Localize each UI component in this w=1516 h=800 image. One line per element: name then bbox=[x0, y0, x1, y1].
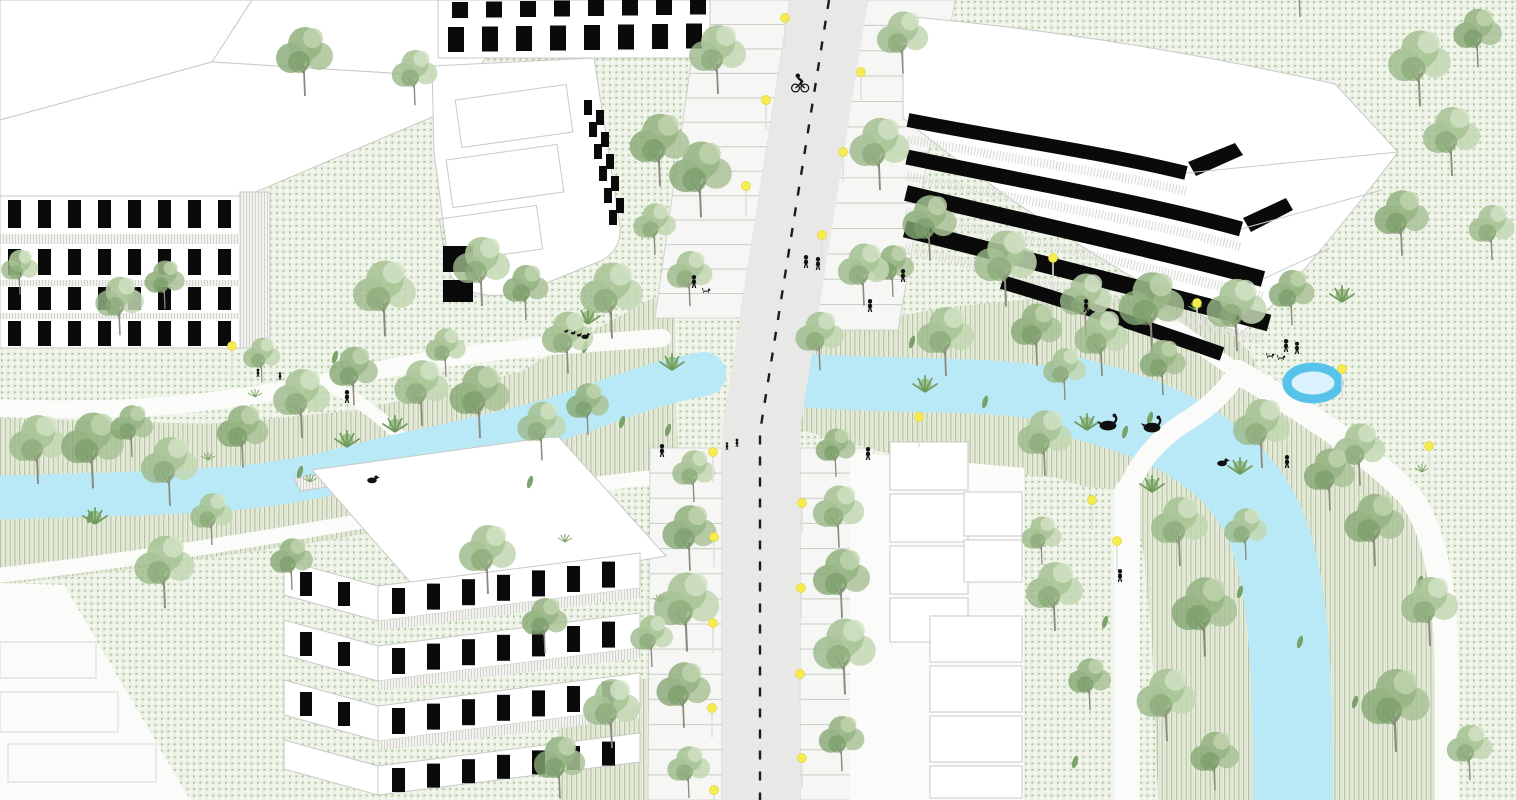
window-bar bbox=[462, 699, 475, 725]
window-bar bbox=[98, 249, 111, 275]
window-bar bbox=[98, 321, 111, 346]
rowhouse-block bbox=[964, 540, 1022, 582]
window-bar bbox=[584, 25, 600, 50]
window-bar bbox=[567, 686, 580, 712]
window-bar bbox=[128, 249, 141, 275]
window-bar bbox=[38, 321, 51, 346]
window-bar bbox=[8, 200, 21, 228]
window-bar bbox=[622, 0, 638, 16]
window-bar bbox=[448, 27, 464, 52]
window-bar bbox=[497, 695, 510, 721]
window-bar bbox=[392, 588, 405, 614]
window-bar bbox=[8, 287, 21, 310]
window-bar bbox=[497, 575, 510, 601]
window-bar bbox=[38, 249, 51, 275]
window-bar bbox=[567, 566, 580, 592]
window-bar bbox=[128, 321, 141, 346]
lamp-light bbox=[796, 670, 805, 679]
window-bar bbox=[497, 635, 510, 661]
window-bar bbox=[188, 321, 201, 346]
rowhouse-block bbox=[930, 666, 1022, 712]
lamp-light bbox=[1425, 442, 1434, 451]
lamp-light bbox=[708, 704, 717, 713]
window-bar bbox=[550, 26, 566, 51]
lamp-light bbox=[915, 413, 924, 422]
window-bar bbox=[38, 287, 51, 310]
window-bar bbox=[588, 0, 604, 16]
curved-corner-building-part bbox=[443, 280, 473, 302]
window-bar bbox=[68, 200, 81, 228]
window-bar bbox=[602, 562, 615, 588]
window-bar bbox=[8, 321, 21, 346]
window-bar bbox=[338, 702, 350, 726]
rowhouse-block bbox=[890, 494, 968, 542]
window-bar bbox=[486, 2, 502, 18]
window-bar bbox=[554, 1, 570, 17]
lamp-light bbox=[781, 14, 790, 23]
feature-layer bbox=[1287, 367, 1339, 399]
window-bar bbox=[98, 200, 111, 228]
rowhouse-block bbox=[890, 546, 968, 594]
window-bar bbox=[68, 249, 81, 275]
window-bar bbox=[604, 188, 612, 203]
lamp-light bbox=[762, 96, 771, 105]
ring-pool bbox=[1287, 367, 1339, 399]
window-bar bbox=[300, 572, 312, 596]
lamp-light bbox=[710, 786, 719, 795]
lamp-light bbox=[818, 231, 827, 240]
lamp-light bbox=[1113, 537, 1122, 546]
window-bar bbox=[497, 755, 510, 779]
window-bar bbox=[392, 648, 405, 674]
apartment-block-northwest-part bbox=[240, 192, 270, 348]
window-bar bbox=[128, 200, 141, 228]
apartment-block-northwest-part bbox=[0, 234, 240, 244]
window-bar bbox=[609, 210, 617, 225]
window-bar bbox=[38, 200, 51, 228]
lamp-light bbox=[1193, 299, 1202, 308]
rowhouse-block bbox=[964, 492, 1022, 536]
window-bar bbox=[68, 321, 81, 346]
window-bar bbox=[616, 198, 624, 213]
window-bar bbox=[656, 0, 672, 15]
window-bar bbox=[300, 632, 312, 656]
window-bar bbox=[452, 2, 468, 18]
lamp-light bbox=[797, 584, 806, 593]
window-bar bbox=[188, 249, 201, 275]
lamp-light bbox=[798, 754, 807, 763]
window-bar bbox=[599, 166, 607, 181]
window-bar bbox=[462, 579, 475, 605]
window-bar bbox=[427, 644, 440, 670]
window-bar bbox=[392, 708, 405, 734]
window-bar bbox=[338, 642, 350, 666]
window-bar bbox=[606, 154, 614, 169]
window-bar bbox=[427, 764, 440, 788]
lamp-light bbox=[798, 499, 807, 508]
lamp-light bbox=[1049, 254, 1058, 263]
window-bar bbox=[516, 26, 532, 51]
lamp-light bbox=[1338, 365, 1347, 374]
site-plan-stage bbox=[0, 0, 1516, 800]
window-bar bbox=[602, 622, 615, 648]
window-bar bbox=[392, 768, 405, 792]
window-bar bbox=[338, 582, 350, 606]
window-bar bbox=[188, 287, 201, 310]
window-bar bbox=[602, 742, 615, 766]
window-bar bbox=[218, 249, 231, 275]
lamp-light bbox=[228, 342, 237, 351]
rowhouse-block bbox=[930, 766, 1022, 798]
window-bar bbox=[584, 100, 592, 115]
lamp-light bbox=[709, 619, 718, 628]
window-bar bbox=[300, 692, 312, 716]
window-bar bbox=[482, 27, 498, 52]
window-bar bbox=[589, 122, 597, 137]
window-bar bbox=[188, 200, 201, 228]
window-bar bbox=[652, 24, 668, 49]
window-bar bbox=[618, 25, 634, 50]
window-bar bbox=[218, 200, 231, 228]
window-bar bbox=[158, 200, 171, 228]
lamp-light bbox=[709, 448, 718, 457]
window-bar bbox=[690, 0, 706, 15]
lamp-light bbox=[710, 533, 719, 542]
rowhouse-block bbox=[930, 716, 1022, 762]
rowhouse-block bbox=[930, 616, 1022, 662]
window-bar bbox=[596, 110, 604, 125]
window-bar bbox=[158, 321, 171, 346]
lamp-light bbox=[1088, 496, 1097, 505]
window-bar bbox=[462, 639, 475, 665]
lamp-light bbox=[839, 148, 848, 157]
window-bar bbox=[594, 144, 602, 159]
window-bar bbox=[68, 287, 81, 310]
window-bar bbox=[462, 759, 475, 783]
rowhouse-block bbox=[890, 442, 968, 490]
rowhouse-layer bbox=[850, 442, 1024, 800]
window-bar bbox=[427, 704, 440, 730]
lamp-light bbox=[857, 68, 866, 77]
window-bar bbox=[532, 570, 545, 596]
lamp-light bbox=[742, 182, 751, 191]
window-bar bbox=[601, 132, 609, 147]
window-bar bbox=[218, 287, 231, 310]
window-bar bbox=[532, 690, 545, 716]
window-bar bbox=[567, 626, 580, 652]
apartment-block-north bbox=[438, 0, 710, 58]
window-bar bbox=[520, 1, 536, 17]
window-bar bbox=[427, 584, 440, 610]
window-bar bbox=[611, 176, 619, 191]
site-plan-illustration bbox=[0, 0, 1516, 800]
